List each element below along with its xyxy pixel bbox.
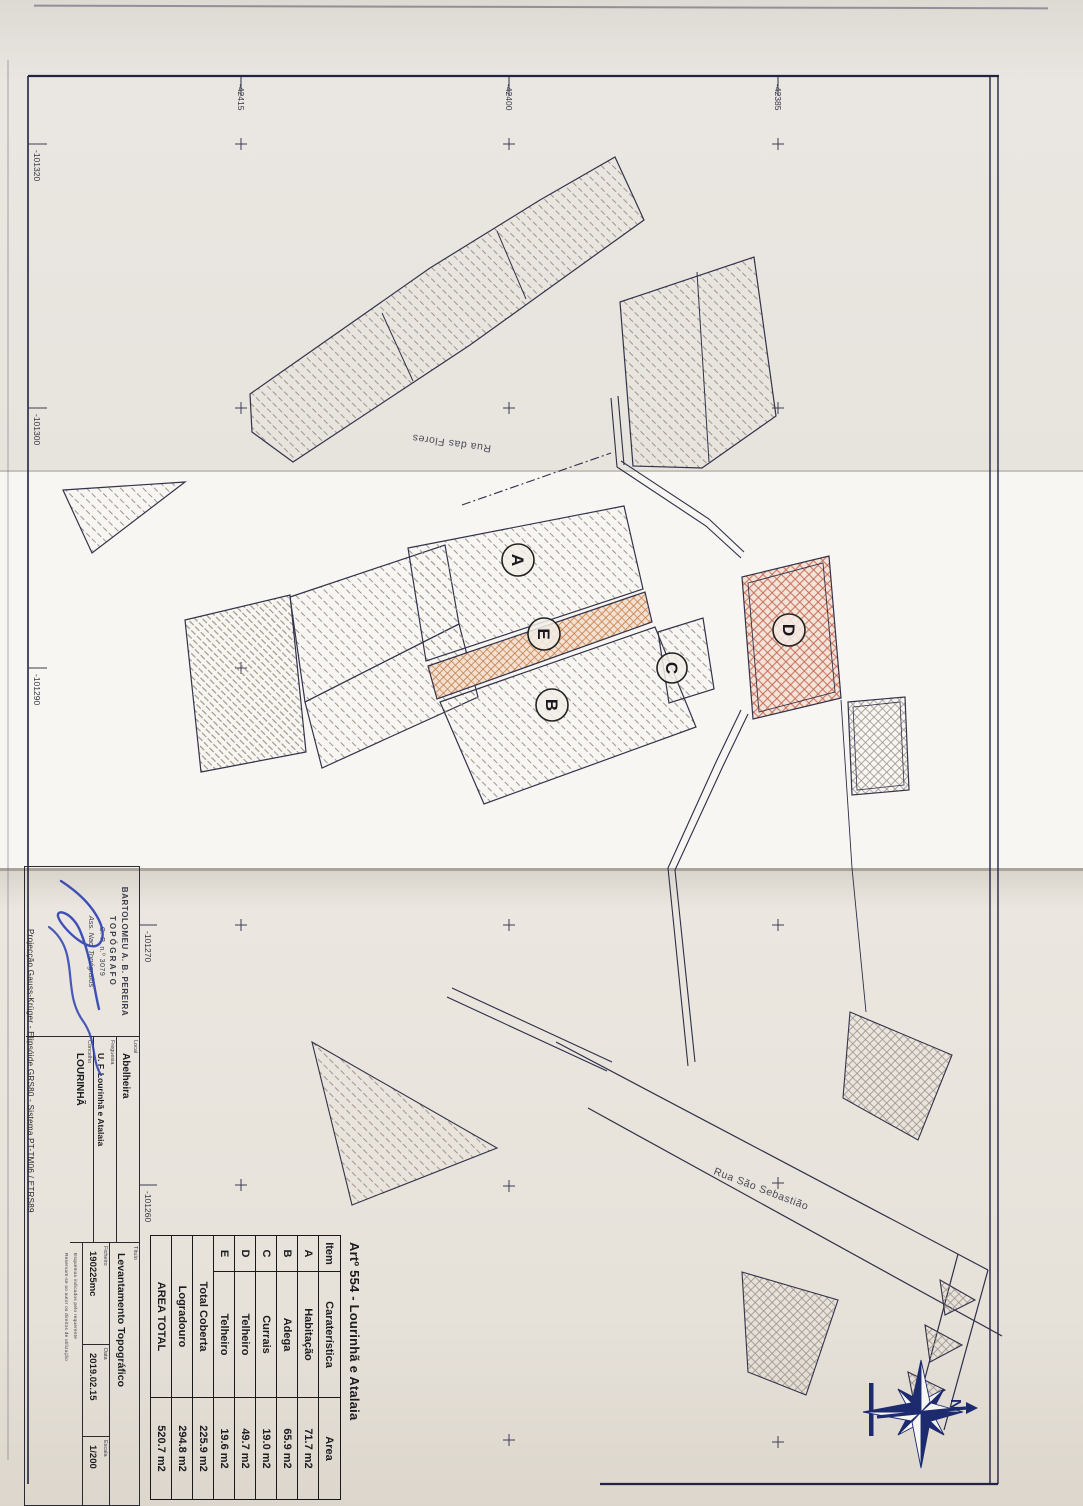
col-header-item: Item <box>319 1236 341 1272</box>
field-freguesia: Freguesia U. F. Lourinhã e Atalaia <box>93 1037 116 1242</box>
top-coord-label: -42400 <box>504 84 514 111</box>
table-summary-row: AREA TOTAL 520.7 m2 <box>151 1236 172 1500</box>
scanned-survey-sheet: -42415 -42400 -42385 -101320 -101300 -10… <box>0 0 1083 1506</box>
cell-item: C <box>256 1236 277 1272</box>
table-summary-row: Logradouro 294.8 m2 <box>172 1236 193 1500</box>
street-label-rua-sao-sebastiao: Rua São Sebastião <box>712 1166 810 1213</box>
hatched-yard-dense <box>185 595 306 772</box>
cell-feature: Currais <box>256 1272 277 1398</box>
field-label: Escala <box>102 1440 108 1457</box>
left-coord-label: -101320 <box>32 150 42 181</box>
left-coord-label: -101270 <box>143 931 153 962</box>
surveyor-association: Ass. Nac. Topógrafos <box>87 867 96 1036</box>
top-coord-label: -42415 <box>236 84 246 111</box>
summary-area: 294.8 m2 <box>172 1398 193 1500</box>
area-table-block: Artº 554 - Lourinhã e Atalaia Item Carat… <box>126 1230 366 1506</box>
field-label: Título <box>132 1246 138 1260</box>
street-label-rua-das-flores: Rua das Flores <box>411 431 492 454</box>
area-table: Item Caraterística Area A Habitação 71.7… <box>150 1235 341 1500</box>
sheet-title: Artº 554 - Lourinhã e Atalaia <box>347 1242 362 1420</box>
fine-print-notes: Esquemas indicados pelo requerente Reser… <box>48 1243 82 1506</box>
file-date-scale-row: Ficheiro 190225mc Data 2019.02.15 Escala… <box>82 1243 109 1506</box>
svg-text:B: B <box>542 699 561 711</box>
surveyor-name: BARTOLOMEU A. B. PEREIRA <box>120 867 129 1036</box>
cell-area: 65.9 m2 <box>277 1398 298 1500</box>
field-value: 1/200 <box>87 1445 98 1469</box>
field-label: Local <box>132 1040 138 1053</box>
svg-text:D: D <box>779 624 798 636</box>
table-row: B Adega 65.9 m2 <box>277 1236 298 1500</box>
summary-area: 225.9 m2 <box>193 1398 214 1500</box>
cell-item: E <box>214 1236 235 1272</box>
parcel-label-b: B <box>536 689 568 721</box>
compass-bar-icon <box>869 1383 874 1436</box>
cell-area: 49.7 m2 <box>235 1398 256 1500</box>
left-coord-label: -101260 <box>143 1191 153 1222</box>
parcel-label-c: C <box>657 653 687 683</box>
summary-label: Logradouro <box>172 1236 193 1398</box>
field-titulo: Título Levantamento Topográfico <box>109 1243 139 1506</box>
table-row: D Telheiro 49.7 m2 <box>235 1236 256 1500</box>
cell-item: B <box>277 1236 298 1272</box>
col-header-area: Area <box>319 1398 341 1500</box>
neighbour-buildings <box>63 157 776 553</box>
cell-area: 19.6 m2 <box>214 1398 235 1500</box>
cell-area: 19.0 m2 <box>256 1398 277 1500</box>
field-label: Freguesia <box>109 1040 115 1064</box>
summary-area: 520.7 m2 <box>151 1398 172 1500</box>
table-header-row: Item Caraterística Area <box>319 1236 341 1500</box>
table-row: A Habitação 71.7 m2 <box>298 1236 319 1500</box>
cell-feature: Adega <box>277 1272 298 1398</box>
cell-area: 71.7 m2 <box>298 1398 319 1500</box>
col-header-feature: Caraterística <box>319 1272 341 1398</box>
field-value: Levantamento Topográfico <box>115 1253 127 1387</box>
summary-label: Total Coberta <box>193 1236 214 1398</box>
hatched-annex <box>848 697 909 795</box>
field-value: LOURINHÃ <box>74 1053 85 1106</box>
cell-feature: Telheiro <box>214 1272 235 1398</box>
field-data: Data 2019.02.15 <box>83 1345 109 1437</box>
field-ficheiro: Ficheiro 190225mc <box>83 1243 109 1345</box>
parcel-label-d: D <box>773 614 805 646</box>
field-local: Local Abelheira <box>116 1037 139 1242</box>
cell-item: D <box>235 1236 256 1272</box>
location-fields: Local Abelheira Freguesia U. F. Lourinhã… <box>70 1037 139 1243</box>
parcel-label-a: A <box>502 544 534 576</box>
projection-note: Projecção Gauss-Krüger - Elipsóide GRS80… <box>26 929 35 1213</box>
compass-rose-icon: N <box>863 1360 978 1468</box>
cell-feature: Telheiro <box>235 1272 256 1398</box>
field-escala: Escala 1/200 <box>83 1437 109 1505</box>
cell-item: A <box>298 1236 319 1272</box>
table-summary-row: Total Coberta 225.9 m2 <box>193 1236 214 1500</box>
left-coord-label: -101290 <box>32 674 42 705</box>
field-label: Ficheiro <box>102 1246 108 1266</box>
field-concelho: Concelho LOURINHÃ <box>70 1037 93 1242</box>
left-coord-label: -101300 <box>32 414 42 445</box>
summary-label: AREA TOTAL <box>151 1236 172 1398</box>
document-fields: Título Levantamento Topográfico Ficheiro… <box>47 1243 139 1506</box>
dash-dot-boundary <box>462 453 611 505</box>
field-label: Concelho <box>86 1040 92 1063</box>
note-line: Reservam-se ao autor os direitos de util… <box>61 1253 70 1506</box>
field-value: 2019.02.15 <box>87 1353 98 1401</box>
top-coord-label: -42385 <box>773 84 783 111</box>
north-label: N <box>947 1399 964 1410</box>
svg-text:C: C <box>662 662 681 674</box>
title-block: BARTOLOMEU A. B. PEREIRA TOPÓGRAFO C. P.… <box>24 866 140 1506</box>
field-value: 190225mc <box>87 1251 98 1296</box>
surveyor-number: C. P. n.º 3079 <box>98 867 105 1036</box>
svg-text:E: E <box>534 628 553 639</box>
table-row: C Currais 19.0 m2 <box>256 1236 277 1500</box>
surveyor-stamp: BARTOLOMEU A. B. PEREIRA TOPÓGRAFO C. P.… <box>26 867 139 1037</box>
cell-feature: Habitação <box>298 1272 319 1398</box>
svg-text:A: A <box>508 554 527 566</box>
surveyor-role: TOPÓGRAFO <box>108 867 117 1036</box>
field-value: Abelheira <box>120 1053 131 1099</box>
parcel-label-e: E <box>528 618 560 650</box>
note-line: Esquemas indicados pelo requerente <box>70 1253 79 1506</box>
parcel-cluster <box>185 506 909 804</box>
table-row: E Telheiro 19.6 m2 <box>214 1236 235 1500</box>
field-value: U. F. Lourinhã e Atalaia <box>96 1053 106 1146</box>
field-label: Data <box>102 1348 108 1360</box>
